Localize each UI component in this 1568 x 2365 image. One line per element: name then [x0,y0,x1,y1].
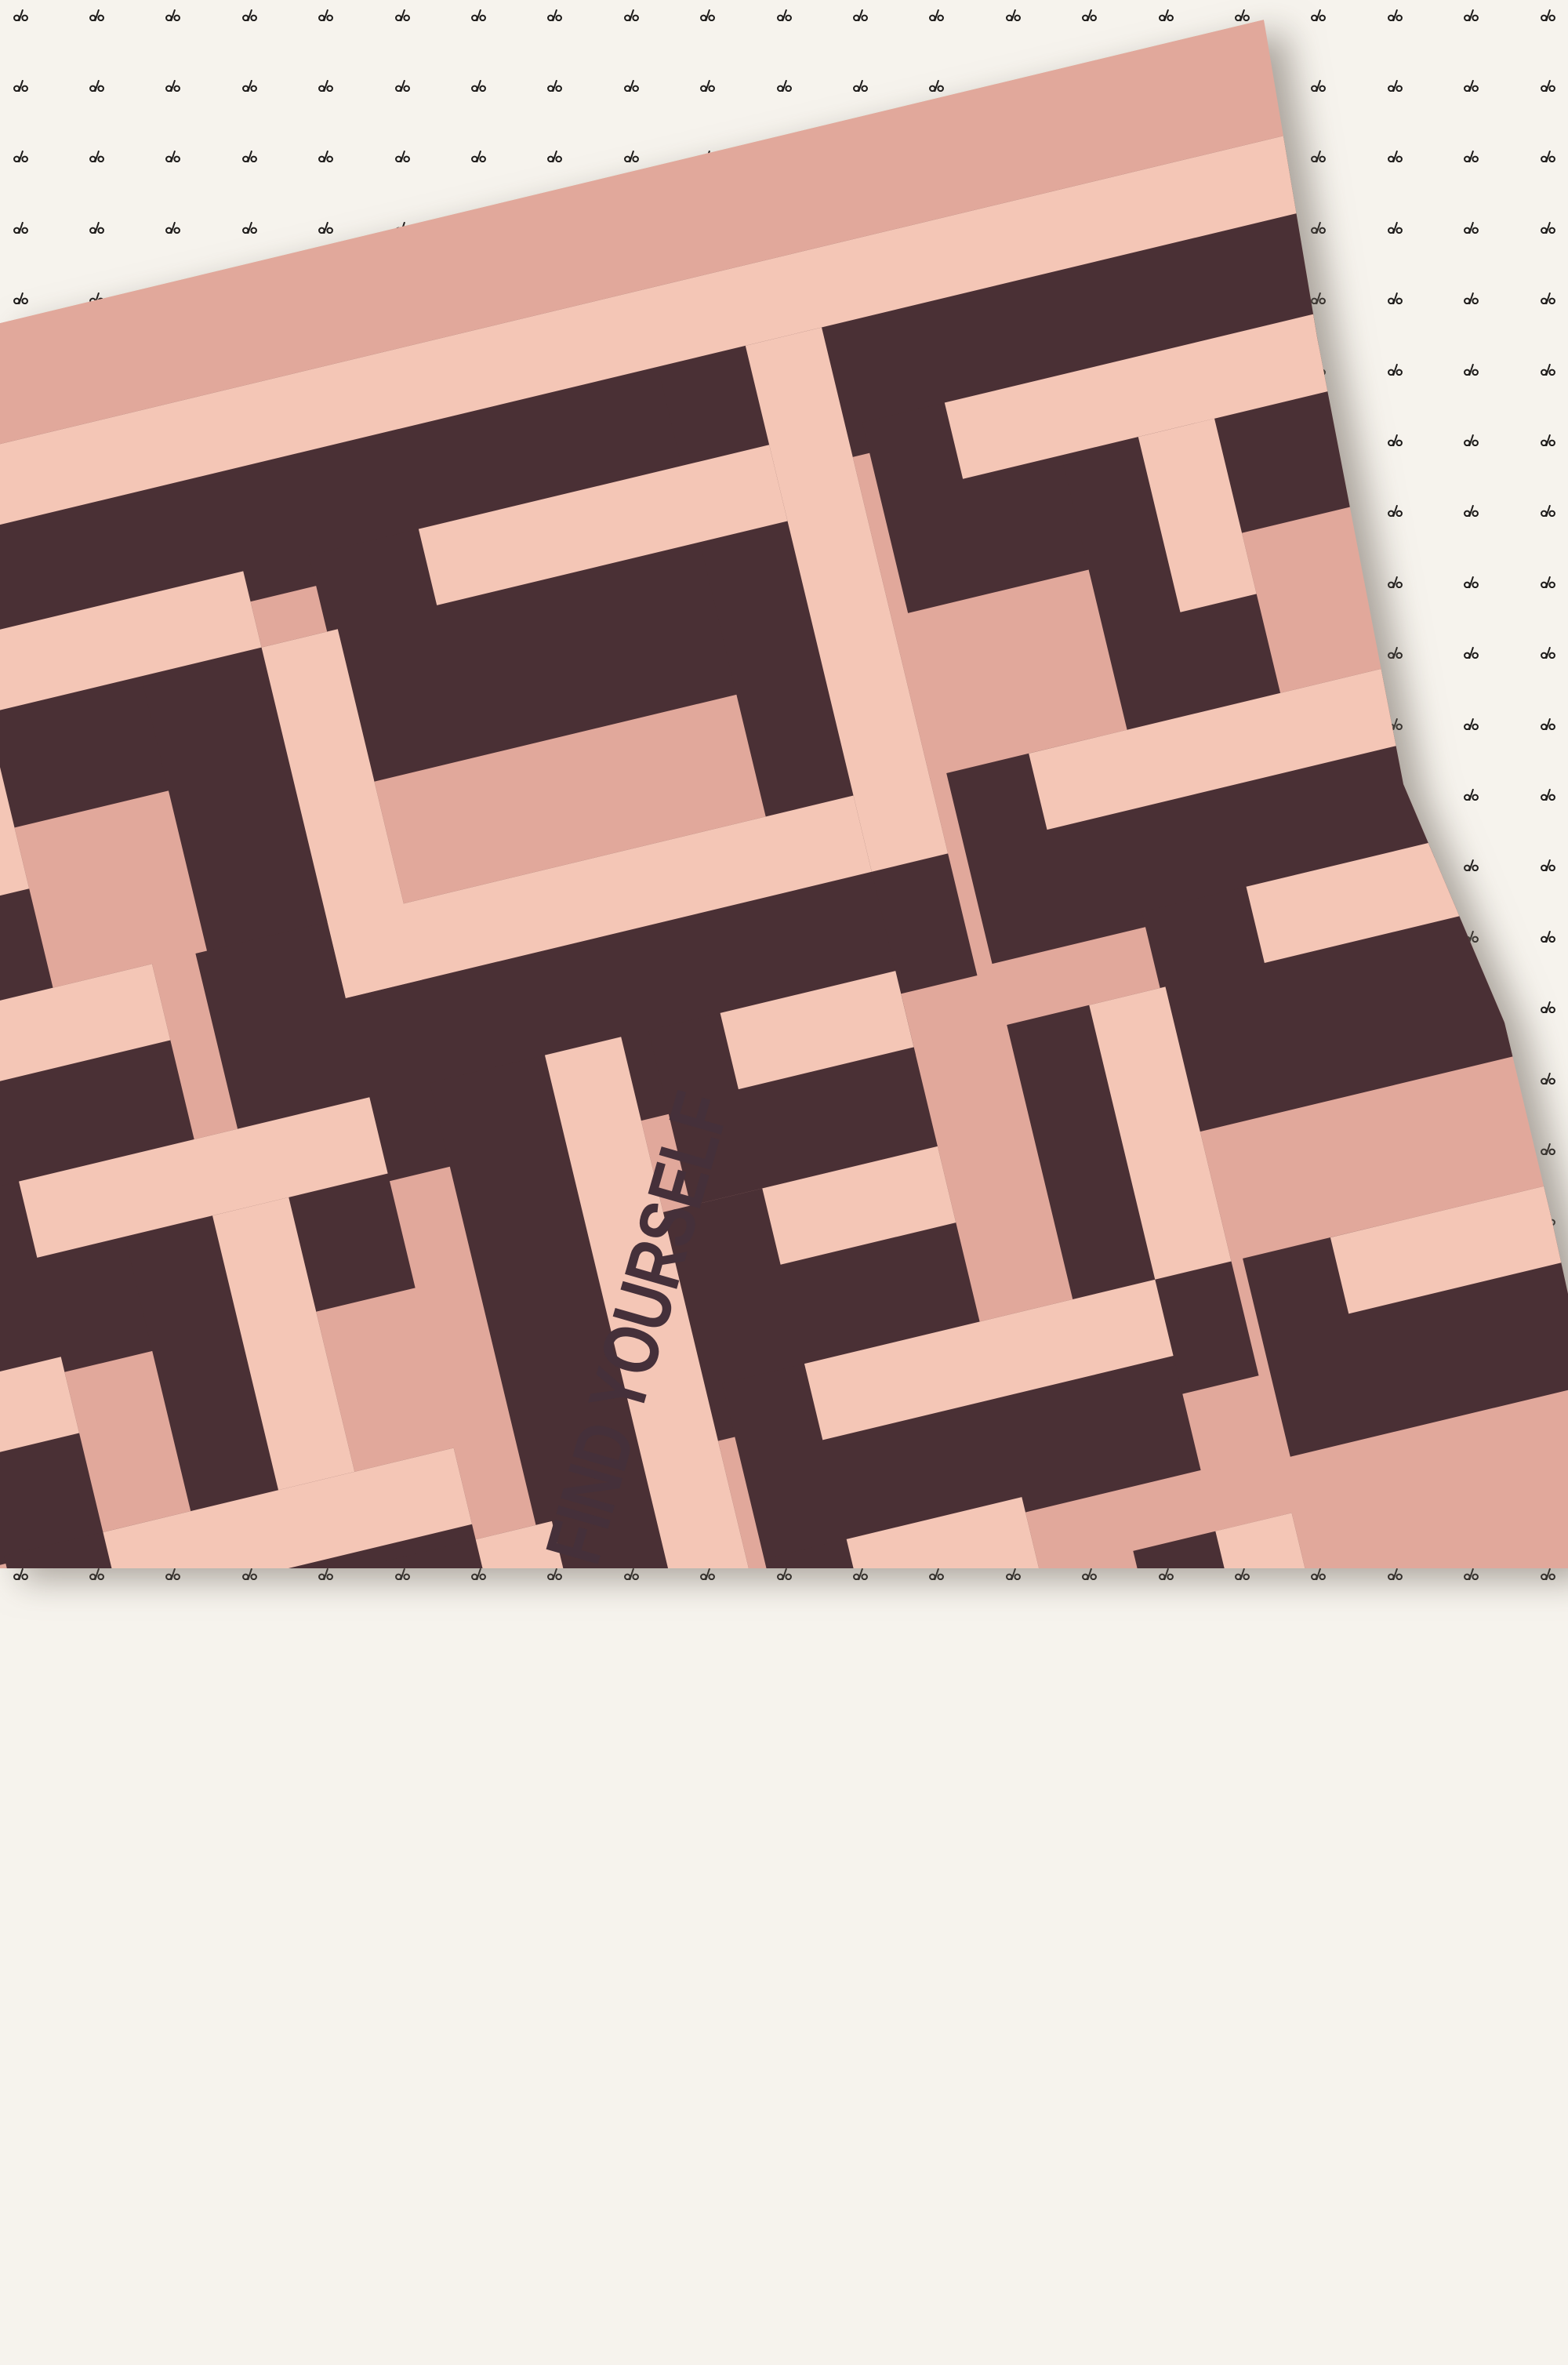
dp-logo-icon [318,1568,333,1580]
dp-logo-icon [242,1568,257,1580]
dp-logo-icon [1159,1568,1174,1580]
dp-logo-icon [1311,1568,1326,1580]
dp-logo-icon [13,1568,28,1580]
dp-logo-icon [700,1568,715,1580]
dp-logo-icon [1541,1568,1555,1580]
dp-logo-icon [1388,1568,1403,1580]
dp-logo-icon [624,1568,639,1580]
dp-logo-icon [1464,1568,1479,1580]
dp-logo-icon [165,1568,180,1580]
dp-logo-icon [395,1568,410,1580]
dp-logo-icon [89,1568,104,1580]
dp-logo-icon [777,1568,792,1580]
dp-logo-icon [1235,1568,1250,1580]
dp-logo-icon [853,1568,868,1580]
maze-sheet [0,0,1568,1568]
dp-logo-icon [1006,1568,1021,1580]
poster-mockup-scene: { "artwork": { "slogan": "FIND YOURSELF"… [0,0,1568,1568]
dp-logo-icon [471,1568,486,1580]
maze-sheet-shadow [0,0,1568,1568]
dp-logo-icon [1082,1568,1097,1580]
dp-logo-icon [547,1568,562,1580]
dp-logo-icon [929,1568,944,1580]
maze-artwork [0,20,1568,2365]
